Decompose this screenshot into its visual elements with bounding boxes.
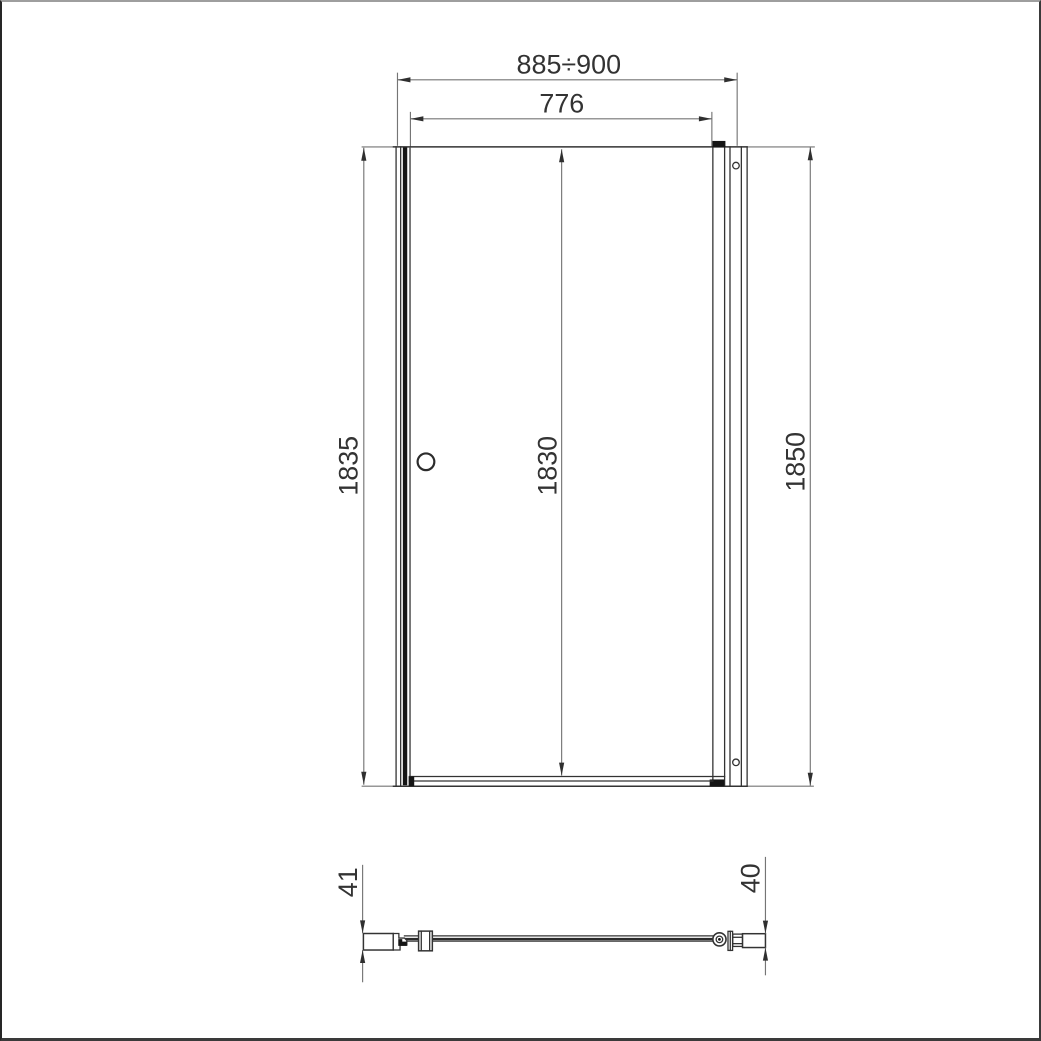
- screw-hole-top: [733, 162, 740, 169]
- dim-door-glass-width-label: 776: [539, 88, 584, 118]
- screw-hole-bottom: [733, 759, 740, 766]
- section-glass-panel: [404, 936, 712, 941]
- wall-profile-right: [725, 147, 748, 786]
- section-wall-profile-right: [743, 934, 766, 948]
- arrow-left-icon: [410, 116, 423, 121]
- dim-overall-width-label: 885÷900: [517, 50, 621, 80]
- arrow-down-icon: [360, 920, 365, 933]
- dim-height-door: 1830: [532, 149, 564, 775]
- front-elevation-view: 885÷900 776: [334, 50, 815, 787]
- arrow-up-icon: [361, 148, 366, 161]
- dim-height-left-label: 1835: [334, 436, 364, 496]
- arrow-down-icon: [763, 921, 768, 934]
- knob-center-dot: [718, 938, 721, 941]
- section-hinge-block: [419, 931, 433, 951]
- rail-end-cap: [409, 776, 415, 786]
- top-pivot-bracket: [712, 141, 725, 147]
- door-handle-knob: [418, 453, 435, 470]
- arrow-down-icon: [559, 763, 564, 776]
- bottom-rail: [409, 776, 725, 786]
- technical-drawing-canvas: 885÷900 776: [2, 2, 1039, 1038]
- arrow-down-icon: [361, 772, 366, 785]
- dim-section-left-depth: 41: [333, 865, 365, 982]
- dim-section-left-depth-label: 41: [333, 867, 363, 897]
- dim-height-door-label: 1830: [532, 436, 562, 496]
- section-pivot-knob: [713, 933, 726, 946]
- dim-section-right-depth-label: 40: [736, 863, 766, 893]
- arrow-right-icon: [699, 116, 712, 121]
- wall-profile-left: [396, 147, 401, 786]
- drawing-sheet: 885÷900 776: [0, 0, 1041, 1041]
- dim-height-right: 1850: [780, 147, 812, 785]
- bracket-body: [733, 934, 743, 946]
- arrow-down-icon: [808, 773, 813, 786]
- dim-section-right-depth: 40: [736, 857, 768, 975]
- door-hinge-edge: [403, 147, 407, 785]
- arrow-up-icon: [808, 147, 813, 160]
- arrow-left-icon: [397, 77, 410, 82]
- section-wall-profile-left: [363, 934, 393, 951]
- arrow-up-icon: [360, 950, 365, 963]
- dim-height-right-label: 1850: [780, 432, 810, 492]
- plan-section-view: 41 40: [333, 857, 768, 982]
- arrow-right-icon: [724, 77, 737, 82]
- arrow-up-icon: [763, 948, 768, 961]
- dim-door-glass-width: 776: [410, 88, 711, 147]
- section-wall-bracket: [728, 931, 743, 950]
- arrow-up-icon: [559, 149, 564, 162]
- glass-core: [404, 938, 712, 940]
- dim-height-left: 1835: [334, 148, 367, 785]
